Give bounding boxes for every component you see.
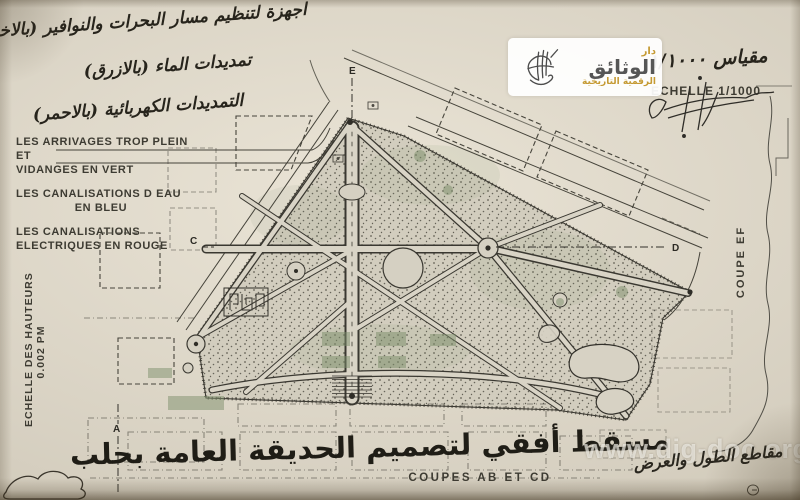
signature-scribble [649,77,774,138]
entrance-steps [332,376,372,397]
logo-brand-sub: الرقمية التاريخية [560,78,656,87]
tughra-emblem-icon [514,41,560,93]
logo-brand-main: الوثائق [560,57,656,77]
scanned-archival-plan: E C D A www [0,0,800,500]
garden-plan-drawing: E C D A [0,0,800,500]
corner-sketch [4,471,86,499]
marker-d: D [672,243,679,254]
marker-c: C [190,236,197,247]
east-margin-line [712,86,792,452]
small-stamp [747,485,758,495]
marker-a: A [113,424,120,435]
coupes-ab-cd-label: COUPES AB ET CD [390,472,570,484]
watermark-logo: دار الوثائق الرقمية التاريخية [508,38,662,96]
marker-e: E [349,66,356,77]
